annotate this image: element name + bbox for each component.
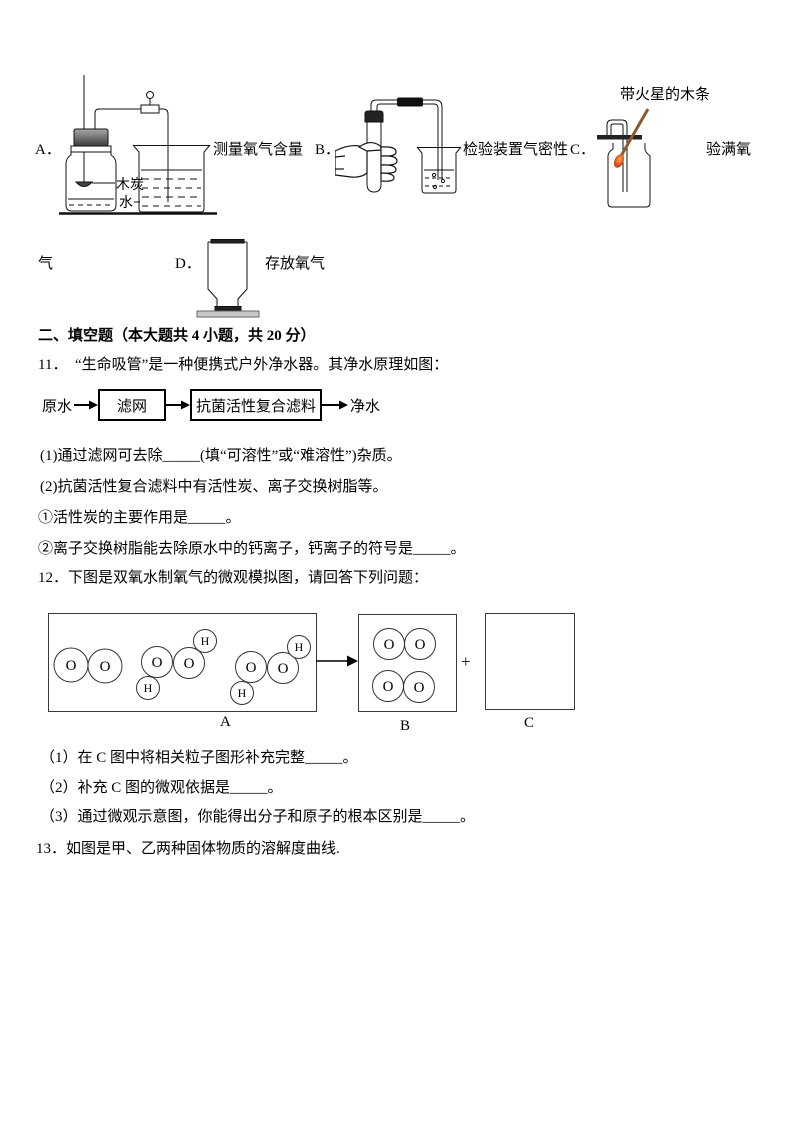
q12-box-c bbox=[485, 613, 575, 710]
q12-box-b: O O O O bbox=[358, 614, 457, 712]
plus-sign: + bbox=[461, 652, 471, 672]
glowing-splint bbox=[621, 109, 648, 156]
option-c-label: C． bbox=[570, 141, 595, 159]
ember bbox=[612, 153, 626, 169]
flow-source: 原水 bbox=[42, 395, 72, 416]
q11-stem: 11． “生命吸管”是一种便携式户外净水器。其净水原理如图： bbox=[38, 356, 448, 374]
q12-label-b: B bbox=[400, 718, 410, 735]
atom-h-label: H bbox=[144, 681, 153, 695]
q11-part2-sub1: ①活性炭的主要作用是_____。 bbox=[38, 509, 241, 527]
delivery-tube bbox=[607, 120, 627, 192]
atom-h-label: H bbox=[201, 634, 210, 648]
flow-box-filter: 滤网 bbox=[98, 389, 166, 421]
flow-result: 净水 bbox=[350, 395, 380, 416]
option-b-caption: 检验装置气密性 bbox=[463, 141, 568, 159]
atom-o-label: O bbox=[415, 637, 426, 653]
section-title: 二、填空题（本大题共 4 小题，共 20 分） bbox=[38, 327, 316, 345]
option-d-caption: 存放氧气 bbox=[265, 255, 325, 273]
apparatus-b-diagram bbox=[335, 95, 465, 230]
atom-o-label: O bbox=[383, 679, 394, 695]
atom-o-label: O bbox=[100, 659, 111, 675]
atom-o-label: O bbox=[414, 680, 425, 696]
q11-part2-sub2: ②离子交换树脂能去除原水中的钙离子，钙离子的符号是_____。 bbox=[38, 540, 466, 558]
atom-o-label: O bbox=[278, 661, 289, 677]
flow-arrow-icon bbox=[166, 399, 190, 411]
reaction-arrow-icon bbox=[316, 651, 358, 671]
q11-part1: (1)通过滤网可去除_____(填“可溶性”或“难溶性”)杂质。 bbox=[40, 447, 402, 465]
valve-icon bbox=[141, 92, 159, 114]
inverted-gas-bottle bbox=[208, 240, 247, 311]
molecules-a: O O O O O O H H H H bbox=[49, 614, 316, 709]
q12-label-a: A bbox=[220, 714, 231, 731]
exam-page: A． bbox=[0, 0, 794, 1123]
q11-flow-diagram: 原水 滤网 抗菌活性复合滤料 净水 bbox=[40, 389, 382, 421]
flow-box-media-label: 抗菌活性复合滤料 bbox=[196, 395, 316, 416]
apparatus-a-diagram: 木炭 水 bbox=[55, 72, 220, 220]
flow-arrow-icon bbox=[322, 399, 348, 411]
q12-part1: （1）在 C 图中将相关粒子图形补充完整_____。 bbox=[40, 749, 358, 767]
apparatus-d-diagram bbox=[196, 234, 260, 320]
q13-stem: 13．如图是甲、乙两种固体物质的溶解度曲线. bbox=[36, 840, 340, 858]
q12-box-a: O O O O O O H H H H bbox=[48, 613, 317, 712]
beaker bbox=[417, 147, 461, 193]
atom-o-label: O bbox=[152, 655, 163, 671]
gas-bottle bbox=[608, 143, 650, 207]
water-label: 水 bbox=[119, 195, 133, 211]
charcoal-label: 木炭 bbox=[116, 177, 144, 193]
q12-part2: （2）补充 C 图的微观依据是_____。 bbox=[40, 779, 283, 797]
flow-box-media: 抗菌活性复合滤料 bbox=[190, 389, 322, 421]
molecules-b: O O O O bbox=[359, 615, 454, 709]
flow-arrow-icon bbox=[74, 399, 98, 411]
atom-o-label: O bbox=[66, 658, 77, 674]
option-c-caption-wrap: 气 bbox=[38, 255, 53, 273]
atom-h-label: H bbox=[238, 686, 247, 700]
q11-part2: (2)抗菌活性复合滤料中有活性炭、离子交换树脂等。 bbox=[40, 478, 388, 496]
option-c-caption: 验满氧 bbox=[706, 141, 751, 159]
flow-box-filter-label: 滤网 bbox=[117, 395, 147, 416]
atom-h-label: H bbox=[295, 640, 304, 654]
q12-label-c: C bbox=[524, 715, 534, 732]
option-a-caption: 测量氧气含量 bbox=[213, 141, 303, 159]
atom-o-label: O bbox=[384, 637, 395, 653]
cover-plate bbox=[597, 135, 642, 140]
q12-stem: 12．下图是双氧水制氧气的微观模拟图，请回答下列问题： bbox=[38, 569, 428, 587]
atom-o-label: O bbox=[184, 656, 195, 672]
beaker bbox=[133, 145, 210, 212]
apparatus-c-diagram bbox=[593, 100, 668, 212]
hand bbox=[335, 143, 397, 182]
q12-part3: （3）通过微观示意图，你能得出分子和原子的根本区别是_____。 bbox=[40, 808, 475, 826]
rubber-connector bbox=[397, 98, 423, 107]
atom-o-label: O bbox=[246, 660, 257, 676]
gas-bottle bbox=[66, 129, 116, 211]
glass-plate bbox=[197, 311, 259, 317]
